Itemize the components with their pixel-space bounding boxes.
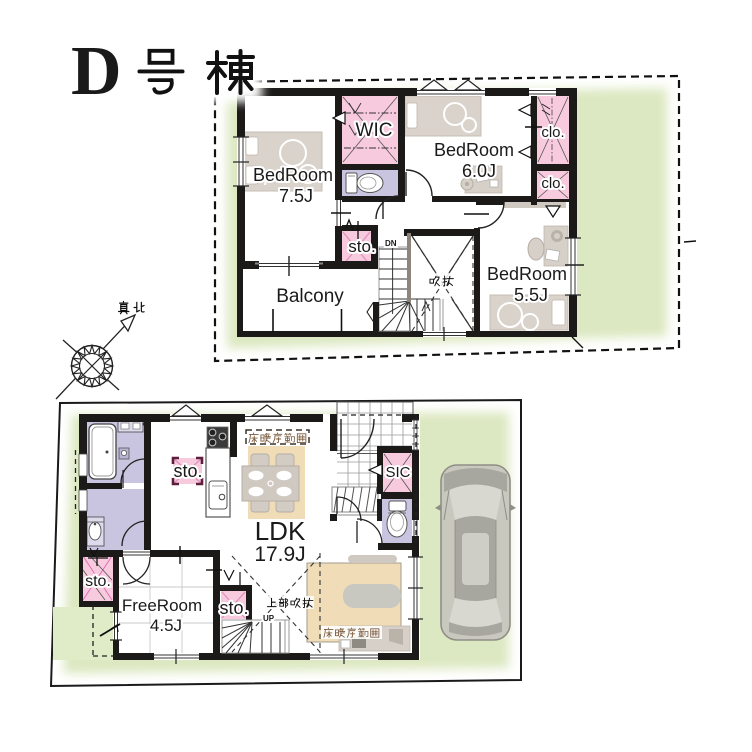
- svg-text:D: D: [71, 33, 122, 110]
- svg-text:sto.: sto.: [173, 461, 202, 481]
- svg-text:6.0J: 6.0J: [462, 161, 496, 181]
- svg-text:4.5J: 4.5J: [150, 616, 182, 635]
- svg-text:sto.: sto.: [219, 598, 248, 618]
- svg-text:LDK: LDK: [255, 516, 306, 546]
- svg-text:17.9J: 17.9J: [254, 543, 305, 566]
- svg-text:SIC: SIC: [385, 464, 410, 481]
- svg-text:7.5J: 7.5J: [279, 186, 313, 206]
- svg-text:clo.: clo.: [541, 124, 564, 141]
- svg-text:clo.: clo.: [541, 175, 564, 192]
- svg-text:sto.: sto.: [348, 237, 375, 256]
- svg-text:DN: DN: [385, 239, 397, 248]
- svg-text:UP: UP: [263, 614, 275, 623]
- svg-text:WIC: WIC: [356, 120, 393, 141]
- svg-text:BedRoom: BedRoom: [253, 165, 333, 185]
- svg-text:5.5J: 5.5J: [514, 285, 548, 305]
- svg-text:sto.: sto.: [85, 573, 111, 590]
- svg-text:Balcony: Balcony: [276, 286, 344, 307]
- svg-text:BedRoom: BedRoom: [434, 140, 514, 160]
- svg-text:BedRoom: BedRoom: [487, 264, 567, 284]
- svg-text:FreeRoom: FreeRoom: [122, 596, 202, 615]
